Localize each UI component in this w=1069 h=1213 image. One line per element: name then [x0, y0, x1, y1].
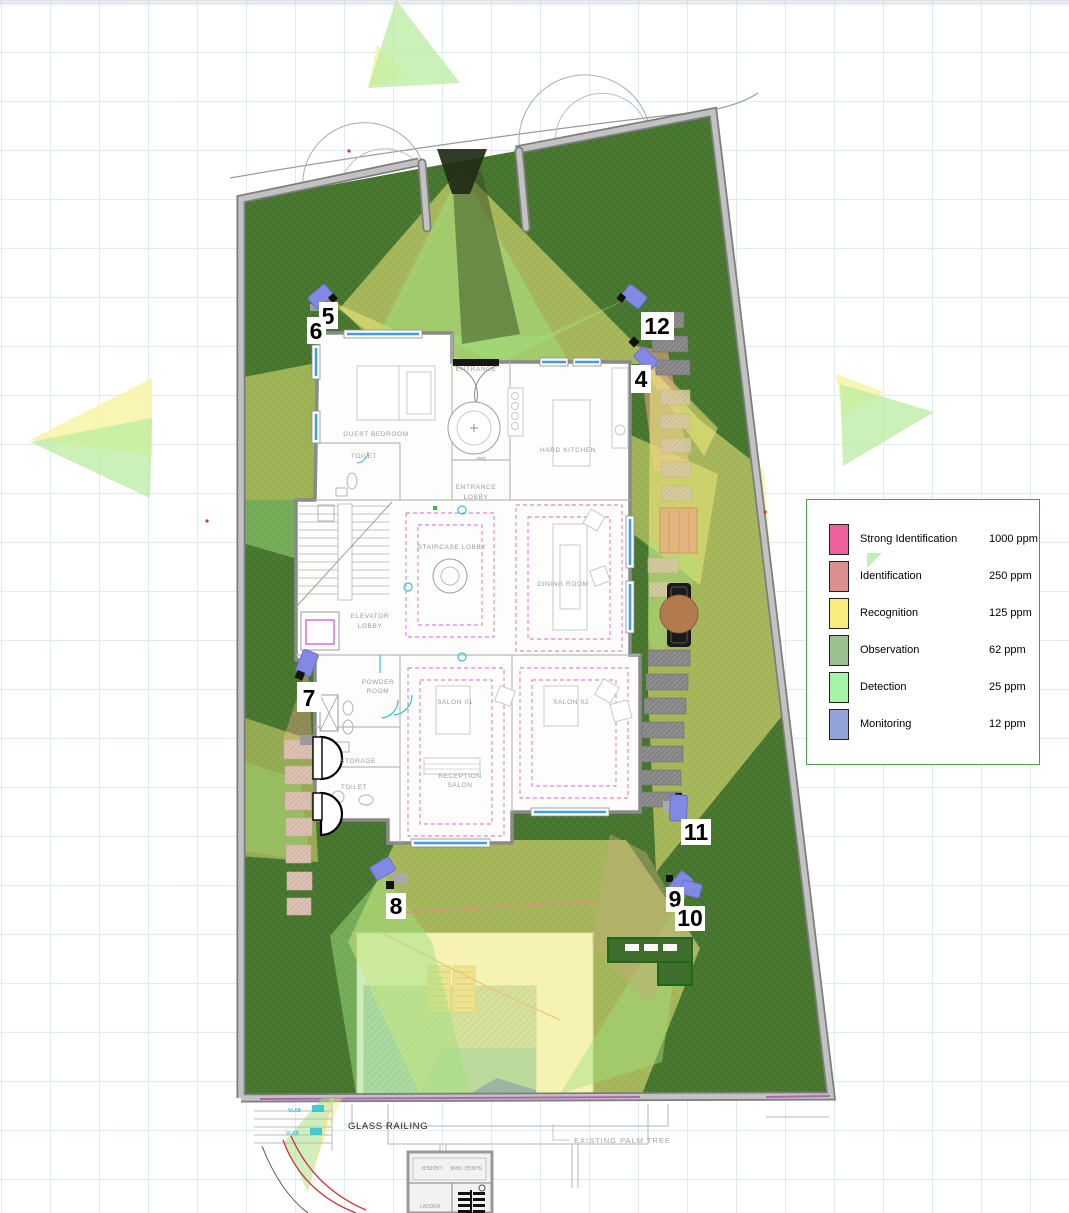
- outside-bottom: VLXB VLXB GLASS RAILING EXISTING PALM TR…: [254, 1098, 829, 1213]
- legend-swatch-3: [829, 635, 849, 666]
- camera-number-10: 10: [677, 905, 703, 931]
- room-label-toilet-lower: TOILET: [341, 784, 367, 791]
- vlxb-label-2: VLXB: [286, 1131, 299, 1137]
- stone-gray: [300, 735, 314, 745]
- camera-number-6: 6: [310, 318, 323, 344]
- room-label-dining-room: DINING ROOM: [537, 581, 588, 588]
- legend-label: Recognition: [860, 607, 918, 619]
- legend-label: Strong Identification: [860, 533, 957, 545]
- legend-ppm-value: 125 ppm: [989, 607, 1032, 619]
- vlxb-marker-1: [312, 1105, 324, 1112]
- room-label-guest-bedroom: GUEST BEDROOM: [343, 431, 408, 438]
- room-label-powder: POWDER: [362, 679, 395, 686]
- legend-ppm-value: 1000 ppm: [989, 533, 1038, 545]
- legend-row-identification: Identification 250 ppm: [807, 561, 1039, 593]
- ladder-label: LADDER: [420, 1204, 441, 1210]
- legend-ppm-value: 25 ppm: [989, 681, 1026, 693]
- camera-number-11: 11: [684, 819, 709, 845]
- legend-label: Identification: [860, 570, 922, 582]
- room-label-step: step: [476, 456, 486, 462]
- legend-row-detection: Detection 25 ppm: [807, 672, 1039, 704]
- legend-row-strong-identification: Strong Identification 1000 ppm: [807, 524, 1039, 556]
- surge-tank-label: SURGE TANK: [449, 1164, 482, 1170]
- room-label-powder-room: ROOM: [367, 688, 390, 695]
- legend-label: Detection: [860, 681, 906, 693]
- legend-ppm-value: 62 ppm: [989, 644, 1026, 656]
- legend-swatch-4: [829, 672, 849, 703]
- room-label-reception-salon: SALON: [447, 782, 472, 789]
- room-label-hard-kitchen: HARD KITCHEN: [540, 447, 596, 454]
- palm-tree-label: EXISTING PALM TREE: [574, 1136, 671, 1145]
- round-table: [660, 595, 698, 633]
- room-label-entrance-lobby-1: ENTRANCE: [456, 484, 497, 491]
- room-label-elevator-lobby: LOBBY: [358, 623, 383, 630]
- legend-swatch-0: [829, 524, 849, 555]
- room-label-toilet-upper: TOILET: [351, 453, 377, 460]
- room-label-entrance-lobby-2: LOBBY: [464, 494, 489, 501]
- camera-number-12: 12: [644, 313, 670, 339]
- room-label-staircase-lobby: STAIRCASE LOBBY: [418, 544, 487, 551]
- room-label-entrance: ENTRANCE: [456, 366, 497, 373]
- camera-number-4: 4: [635, 366, 648, 392]
- vlxb-marker-2: [310, 1128, 322, 1135]
- camera-number-8: 8: [390, 893, 403, 919]
- legend-label: Observation: [860, 644, 919, 656]
- glass-railing-label: GLASS RAILING: [348, 1121, 428, 1132]
- ladder-top-label: LADDER: [421, 1164, 442, 1170]
- legend-row-recognition: Recognition 125 ppm: [807, 598, 1039, 630]
- site-plan-canvas: GUEST BEDROOM TOILET ENTRANCE ENTRANCE L…: [0, 0, 1069, 1213]
- legend-ppm-value: 12 ppm: [989, 718, 1026, 730]
- legend-swatch-2: [829, 598, 849, 629]
- green-marker: [433, 506, 437, 510]
- legend-swatch-5: [829, 709, 849, 740]
- room-label-salon01: SALON 01: [437, 699, 473, 706]
- legend-label: Monitoring: [860, 718, 911, 730]
- camera-number-7: 7: [303, 685, 316, 711]
- room-label-reception: RECEPTION: [438, 773, 481, 780]
- legend-row-observation: Observation 62 ppm: [807, 635, 1039, 667]
- house-plan: GUEST BEDROOM TOILET ENTRANCE ENTRANCE L…: [296, 330, 640, 847]
- room-label-elevator: ELEVATOR: [351, 613, 389, 620]
- room-label-salon02: SALON 02: [553, 699, 589, 706]
- vlxb-label-1: VLXB: [288, 1108, 301, 1114]
- legend-ppm-value: 250 ppm: [989, 570, 1032, 582]
- legend-row-monitoring: Monitoring 12 ppm: [807, 709, 1039, 741]
- entrance-door: [453, 359, 499, 366]
- pump-room-structure: LADDER SURGE TANK LADDER: [408, 1152, 492, 1213]
- legend-swatch-1: [829, 561, 849, 592]
- room-label-storage: STORAGE: [340, 758, 376, 765]
- legend-panel: Strong Identification 1000 ppm Identific…: [806, 499, 1040, 765]
- cone-cam7-yellow: [239, 362, 321, 500]
